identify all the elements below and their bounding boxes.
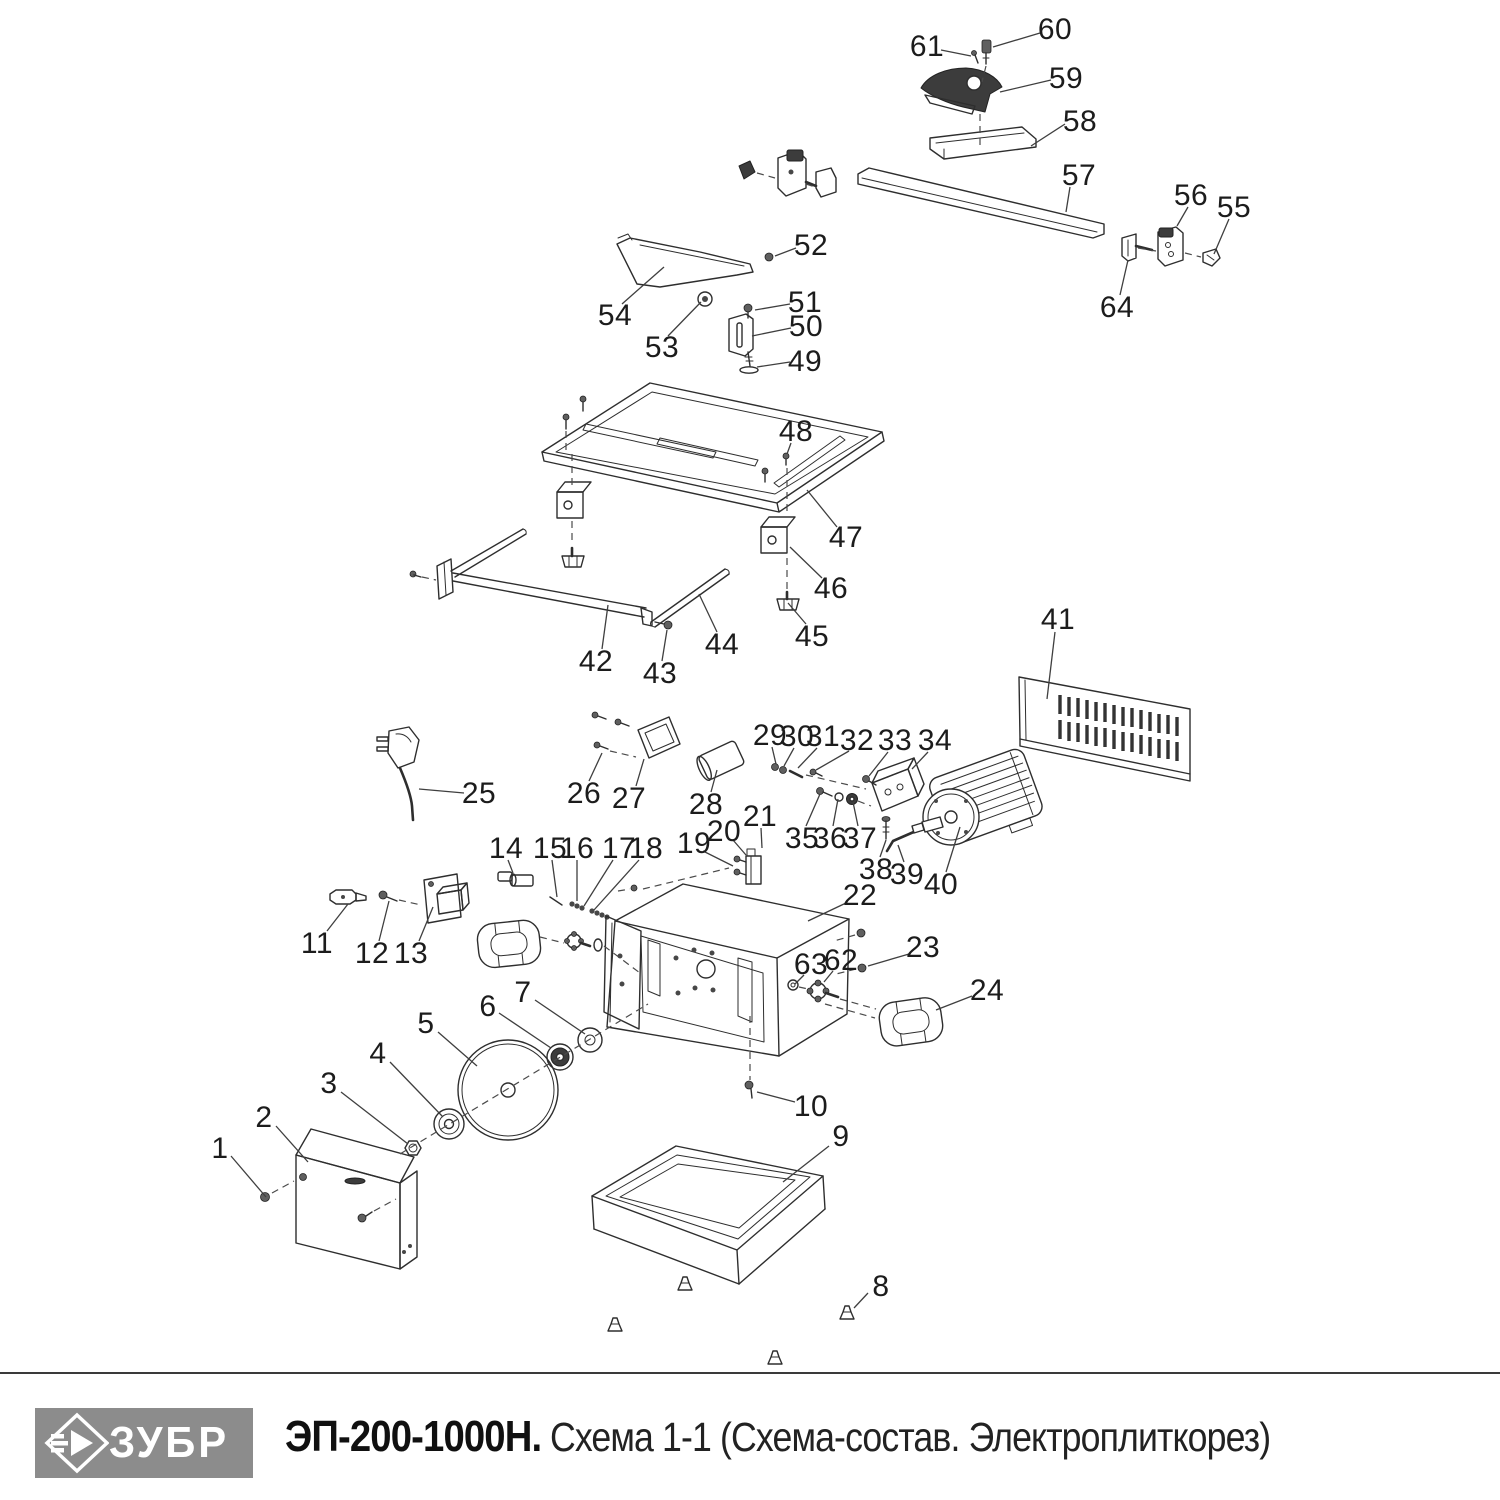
- leader-line-51: [755, 304, 790, 310]
- part-59-angle-guide: [921, 68, 1002, 114]
- part-10-screw: [745, 1081, 753, 1098]
- leader-line-55: [1214, 219, 1229, 254]
- part-52-screw: [765, 253, 773, 261]
- part-42-frame-tube: [410, 529, 652, 626]
- part-28-capacitor: [694, 740, 745, 782]
- part-label-7: 7: [514, 976, 531, 1009]
- blade-mount-plate: [604, 916, 641, 1029]
- part-label-56: 56: [1174, 179, 1208, 212]
- part-label-45: 45: [795, 620, 829, 653]
- part-9-water-tray: [592, 1146, 825, 1284]
- leader-line-8: [854, 1293, 868, 1308]
- fence-clamp-assembly: [739, 150, 836, 197]
- part-label-64: 64: [1100, 291, 1134, 324]
- part-44-frame-rod: [651, 569, 730, 627]
- leader-line-12: [379, 901, 389, 941]
- part-label-37: 37: [843, 822, 877, 855]
- part-53-knob: [698, 292, 712, 306]
- leader-line-7: [535, 1000, 585, 1034]
- exploded-diagram: 1234567891011121314151617181920212223242…: [0, 0, 1500, 1500]
- part-54-side-guard: [617, 234, 753, 287]
- part-46-mount-brackets: [557, 482, 795, 553]
- part-label-4: 4: [369, 1037, 386, 1070]
- leader-line-13: [419, 907, 433, 941]
- part-24-handle: [877, 996, 945, 1048]
- part-62-knob: [807, 980, 838, 1002]
- part-32-pin: [810, 769, 822, 776]
- part-label-32: 32: [840, 724, 874, 757]
- leader-line-64: [1120, 260, 1128, 295]
- page: 1234567891011121314151617181920212223242…: [0, 0, 1500, 1500]
- part-label-9: 9: [832, 1120, 849, 1153]
- part-label-24: 24: [970, 974, 1004, 1007]
- part-label-2: 2: [255, 1101, 272, 1134]
- part-label-54: 54: [598, 299, 632, 332]
- part-label-43: 43: [643, 657, 677, 690]
- part-label-1: 1: [211, 1132, 228, 1165]
- parts-29-30-31-washers-pin: [772, 764, 803, 778]
- part-56-clamp-bracket: [1158, 227, 1183, 266]
- part-label-6: 6: [479, 990, 496, 1023]
- part-23-screws: [857, 929, 866, 972]
- zubr-logo-text: ЗУБР: [109, 1418, 229, 1468]
- part-26-screws: [592, 712, 629, 749]
- part-label-13: 13: [394, 937, 428, 970]
- parts-19-20-21-hinge: [734, 849, 761, 884]
- part-labels: 1234567891011121314151617181920212223242…: [211, 13, 1251, 1308]
- zubr-logo-mark: [35, 1408, 109, 1478]
- part-48-table-screws: [563, 396, 789, 482]
- part-label-62: 62: [824, 944, 858, 977]
- leader-line-2: [276, 1126, 308, 1162]
- part-label-51: 51: [788, 286, 822, 319]
- part-label-46: 46: [814, 572, 848, 605]
- part-label-10: 10: [794, 1090, 828, 1123]
- part-label-53: 53: [645, 331, 679, 364]
- leader-line-42: [602, 605, 608, 649]
- leader-line-17: [584, 860, 613, 906]
- leader-line-5: [438, 1032, 477, 1066]
- leader-line-44: [699, 594, 717, 632]
- part-38-bolt: [882, 817, 890, 840]
- leader-line-41: [1047, 632, 1055, 699]
- part-label-49: 49: [788, 345, 822, 378]
- leader-line-61: [941, 50, 971, 56]
- part-label-40: 40: [924, 868, 958, 901]
- part-label-33: 33: [878, 724, 912, 757]
- footer: ЗУБР ЭП-200-1000Н.Схема 1-1 (Схема-соста…: [0, 1372, 1500, 1500]
- part-label-12: 12: [355, 937, 389, 970]
- part-label-21: 21: [743, 800, 777, 833]
- scheme-name: Схема 1-1 (Схема-состав. Электроплиткоре…: [550, 1414, 1270, 1460]
- part-label-38: 38: [859, 853, 893, 886]
- part-label-55: 55: [1217, 191, 1251, 224]
- part-label-3: 3: [320, 1067, 337, 1100]
- part-label-25: 25: [462, 777, 496, 810]
- housing-left-screws: [631, 885, 637, 891]
- part-15-pin: [550, 897, 562, 905]
- part-label-18: 18: [629, 832, 663, 865]
- part-label-8: 8: [872, 1270, 889, 1303]
- part-label-63: 63: [794, 948, 828, 981]
- leader-line-23: [868, 954, 909, 966]
- leader-line-3: [341, 1092, 408, 1144]
- leader-line-25: [419, 789, 464, 793]
- part-label-60: 60: [1038, 13, 1072, 46]
- part-27-switch-frame: [638, 717, 680, 758]
- part-label-61: 61: [910, 30, 944, 63]
- part-60-bolt: [982, 40, 991, 64]
- part-label-5: 5: [417, 1007, 434, 1040]
- part-13-switch-plate: [424, 874, 469, 923]
- part-5-cutting-disc: [458, 1040, 558, 1140]
- part-label-44: 44: [705, 628, 739, 661]
- part-11-micro-switch: [330, 890, 366, 904]
- part-label-14: 14: [489, 832, 523, 865]
- part-label-11: 11: [301, 927, 333, 960]
- leader-line-4: [390, 1062, 443, 1117]
- part-47-table-top: [542, 383, 884, 512]
- leader-line-50: [752, 328, 791, 336]
- part-8-rubber-feet: [608, 1277, 854, 1364]
- leader-line-18: [594, 860, 639, 910]
- part-64-bracket: [1122, 234, 1152, 261]
- part-39-rod: [887, 831, 916, 851]
- zubr-logo: ЗУБР: [35, 1408, 253, 1478]
- part-34-terminal-box: [872, 758, 924, 811]
- part-label-16: 16: [560, 832, 594, 865]
- leader-line-59: [1000, 80, 1051, 92]
- leader-line-60: [993, 33, 1040, 47]
- part-label-28: 28: [689, 788, 723, 821]
- part-50-stop-bracket: [729, 314, 753, 356]
- part-label-42: 42: [579, 645, 613, 678]
- part-63-washer: [788, 980, 798, 990]
- left-handle: [476, 919, 602, 969]
- part-label-48: 48: [779, 415, 813, 448]
- part-label-31: 31: [806, 720, 840, 753]
- part-25-power-plug: [377, 727, 419, 820]
- part-55-clip: [1203, 249, 1220, 266]
- parts-16-17-18-washers: [569, 901, 609, 919]
- model-number: ЭП-200-1000Н.: [285, 1412, 541, 1461]
- part-40-motor: [912, 747, 1048, 854]
- part-label-47: 47: [829, 521, 863, 554]
- part-41-vent-panel: [1019, 677, 1190, 781]
- leader-line-24: [936, 996, 972, 1010]
- part-1-screw: [261, 1193, 270, 1202]
- part-14-pin: [498, 872, 533, 886]
- part-label-27: 27: [612, 782, 646, 815]
- part-58-guide-plate: [930, 127, 1036, 159]
- part-2-blade-guard: [296, 1129, 417, 1269]
- part-label-23: 23: [906, 931, 940, 964]
- drawing-title: ЭП-200-1000Н.Схема 1-1 (Схема-состав. Эл…: [285, 1412, 1270, 1462]
- leader-line-10: [757, 1092, 795, 1102]
- part-label-52: 52: [794, 229, 828, 262]
- part-61-screw: [972, 51, 979, 64]
- part-label-57: 57: [1062, 159, 1096, 192]
- part-label-58: 58: [1063, 105, 1097, 138]
- part-label-59: 59: [1049, 62, 1083, 95]
- leader-line-58: [1031, 124, 1065, 146]
- part-label-26: 26: [567, 777, 601, 810]
- part-4-outer-flange: [434, 1109, 464, 1139]
- leader-line-49: [757, 362, 790, 367]
- part-label-34: 34: [918, 724, 952, 757]
- part-12-screw: [379, 891, 397, 901]
- part-label-41: 41: [1041, 603, 1075, 636]
- leader-line-1: [231, 1156, 266, 1197]
- part-label-39: 39: [890, 858, 924, 891]
- leader-line-15: [552, 860, 557, 897]
